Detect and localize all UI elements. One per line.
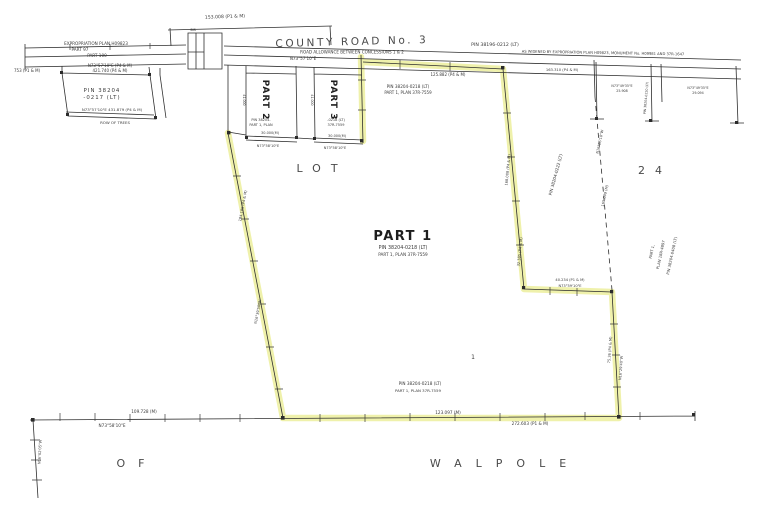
parcel-0217-top-dim: 421.740 (P4 & M) (92, 68, 127, 73)
part1-pin-top: PIN 38204-0218 (LT) (387, 84, 430, 89)
road-allowance-note: ROAD ALLOWANCE BETWEEN CONCESSIONS 1 & 2 (300, 50, 404, 55)
bottom-bearing1: N73°58'10"E (99, 423, 126, 428)
parcel-0217-pin-line2: -0217 (LT) (83, 95, 120, 101)
lot-word: LOT (296, 162, 347, 175)
parcel-0217-row-of-trees: ROW OF TREES (100, 120, 130, 125)
dim-top-left: 153.008 (P1 & M) (205, 13, 246, 20)
lot-number: 24 (638, 164, 672, 177)
part2-width-dim: 30.000(M) (261, 131, 280, 135)
pin-0408-label: PIN 38204-0408 (LT) (665, 236, 678, 275)
township-of: OF (117, 457, 158, 470)
part2-side-dim: 41.000 (242, 94, 246, 105)
survey-plan-scan: 153.008 (P1 & M) EXPROPRIATION PLAN H098… (0, 0, 760, 505)
ne-bearing2: N73°49'35"E (687, 86, 708, 90)
road-name: COUNTY ROAD No. 3 (275, 34, 428, 50)
monument-detail-box (188, 33, 222, 69)
road-dim-mid: 125.882 (P4 & M) (430, 72, 465, 77)
road-dim-mid2: 163.310 (P4 & M) (546, 68, 579, 72)
ne-dim1: 25.908 (616, 89, 628, 93)
part2-plan: PART 1, PLAN (249, 123, 273, 127)
part1-jog-dim: 40.234 (P1 & M) (555, 278, 585, 282)
part2-pin: PIN 38204- (251, 118, 271, 122)
dashed-line-bearing: N16°26'10"W (596, 129, 605, 154)
pin-0408-plan: PLAN 18R-4897 (655, 239, 666, 269)
part1-pin: PIN 38204-0218 (LT) (379, 245, 428, 251)
parcel-0217-bottom-dim: N73°57'10"E 431.879 (P4 & M) (82, 107, 143, 112)
expropriation-note-line1: EXPROPRIATION PLAN H09823 (64, 41, 128, 46)
dashed-line-dim: 165.049 (M) (601, 184, 610, 207)
bottom-dim1: 109.728 (M) (131, 409, 157, 414)
northeast-parcel-lines (590, 62, 744, 124)
part1-interior-mark: 1 (471, 354, 475, 361)
road-widened-note: AS WIDENED BY EXPROPRIATION PLAN H09823,… (522, 50, 685, 57)
part1-plan: PART 1, PLAN 37R-7559 (378, 252, 428, 257)
township-name: WALPOLE (430, 457, 580, 470)
west-limit-bearing: N16°02'05"W (37, 439, 42, 464)
part3-width-dim: 30.000(M) (328, 134, 347, 138)
part3-label: PART 3 (328, 80, 338, 121)
expropriation-note-line2: PART 97 (72, 47, 89, 52)
part1-jog-bearing: N73°59'10"E (558, 284, 582, 288)
part1-pin-bottom: PIN 38204-0218 (LT) (399, 381, 442, 386)
part3-plan: 37R-7559 (328, 123, 345, 127)
ne-bearing1: N73°49'35"E (611, 84, 632, 88)
part2-bearing: N73°58'10"E (257, 144, 280, 148)
ne-pin: PIN 38204-0220 (LT) (643, 82, 650, 115)
bottom-dim3: 272.603 (P1 & M) (512, 421, 549, 426)
part3-side-dim: 41.000 (310, 94, 314, 105)
monument-sib-label: SIB (190, 28, 196, 32)
pin-0222-label: PIN 38204-0222 (LT) (548, 153, 564, 196)
part1-title: PART 1 (373, 229, 432, 244)
part3-pin: -0218 (LT) (327, 118, 345, 122)
part1-south-bearing: N16°29'40"W (618, 355, 624, 380)
part3-bearing: N73°58'10"E (324, 146, 347, 150)
part1-plan-top: PART 1, PLAN 37R-7559 (384, 90, 432, 95)
parcel-0217-pin-line1: PIN 38204 (84, 88, 121, 94)
pin-0408-part: PART 1, (648, 244, 656, 259)
survey-plan-drawing: 153.008 (P1 & M) EXPROPRIATION PLAN H098… (0, 0, 760, 505)
part1-plan-bottom: PART 1, PLAN 37R-7559 (395, 388, 441, 393)
expropriation-note-line3: PART 100 (87, 53, 107, 58)
dashed-lot-line-top-connector (594, 60, 595, 97)
ne-dim2: 29.094 (692, 91, 704, 95)
part2-label: PART 2 (260, 80, 270, 121)
bottom-dim2: 123.097 (M) (435, 410, 461, 415)
part2-part3-outlines (228, 65, 363, 144)
road-bearing: N73°57'10"E (290, 56, 317, 61)
road-pin: PIN 38196-0212 (LT) (471, 42, 519, 48)
dim-road-left: 753 (P1 & M) (14, 68, 41, 73)
south-boundary-lines (30, 411, 695, 498)
